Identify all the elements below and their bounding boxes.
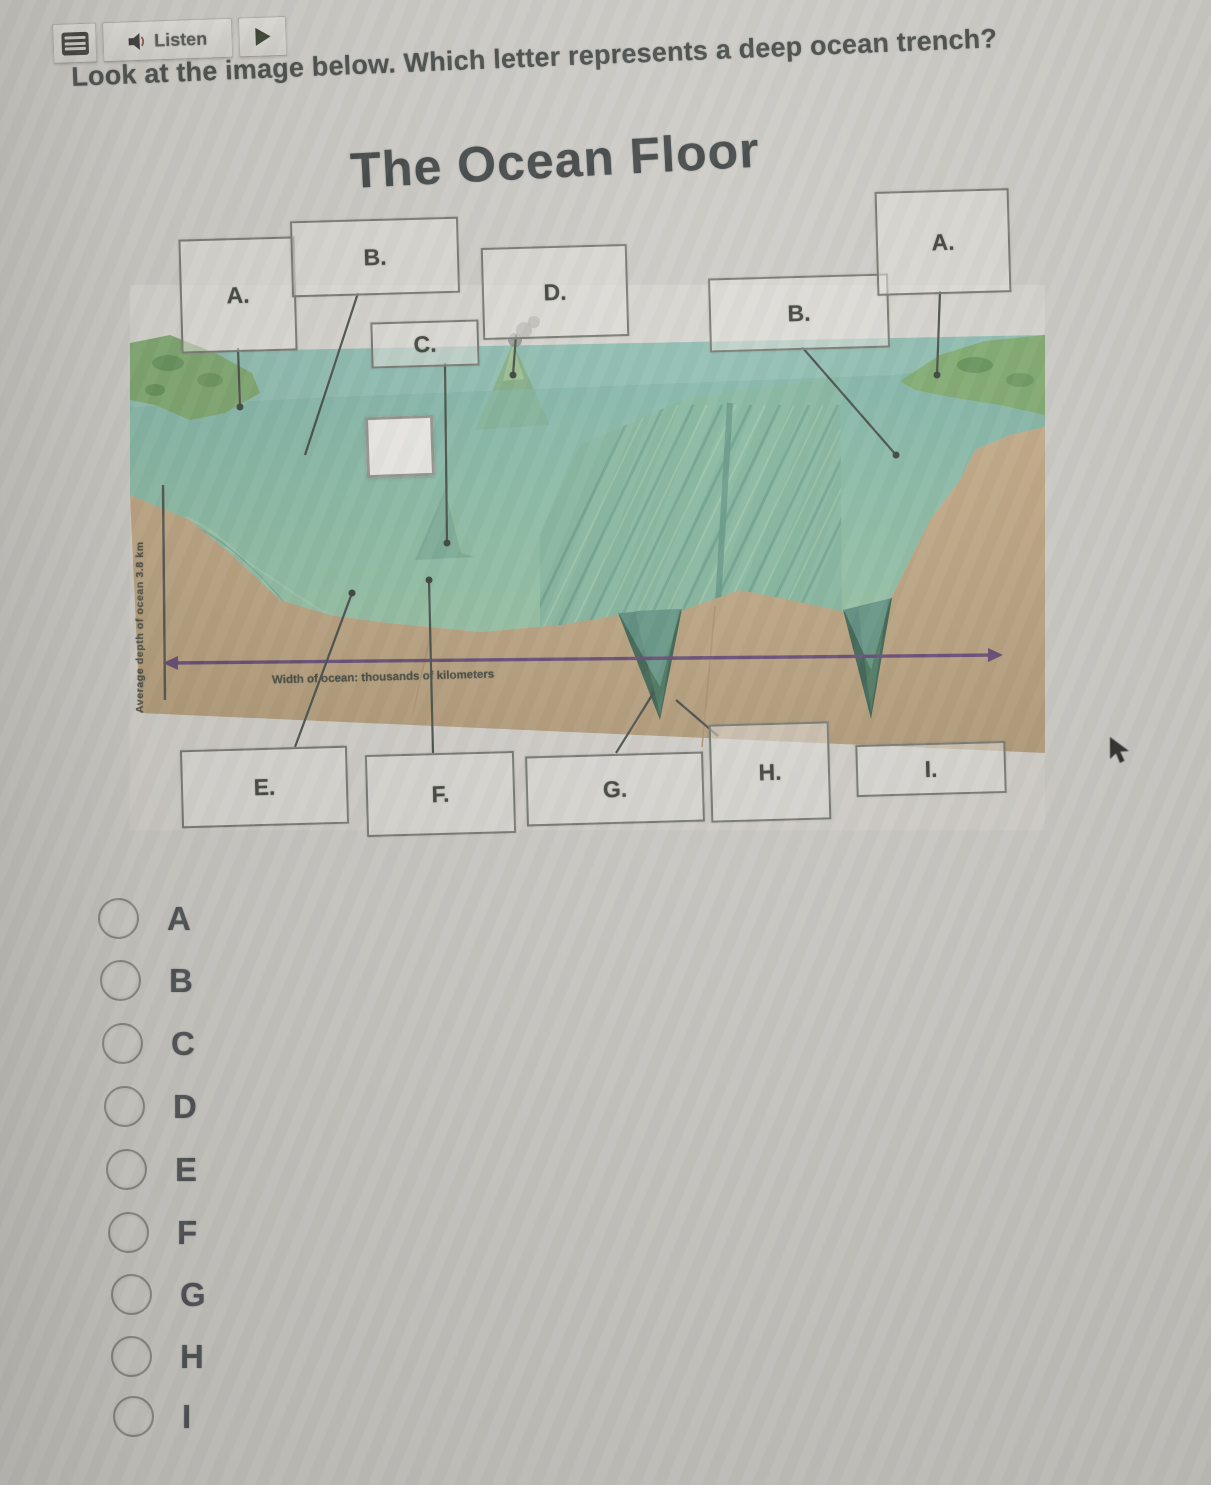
label-f: F. xyxy=(431,780,450,807)
option-row-e: E xyxy=(106,1149,197,1190)
diagram-label-box-c: C. xyxy=(370,320,479,369)
diagram-label-box-i: I. xyxy=(855,741,1006,797)
option-row-f: F xyxy=(108,1212,197,1253)
diagram-label-box-h: H. xyxy=(709,721,832,822)
diagram-label-box-a-right: A. xyxy=(875,188,1012,296)
radio-a[interactable] xyxy=(98,898,139,939)
radio-g[interactable] xyxy=(111,1274,152,1315)
label-a-right: A. xyxy=(931,228,955,256)
radio-d[interactable] xyxy=(104,1086,145,1127)
hamburger-icon xyxy=(61,31,89,55)
option-label-d: D xyxy=(173,1088,197,1126)
diagram-label-box-e: E. xyxy=(180,746,349,829)
diagram-label-box-b-top: B. xyxy=(290,217,460,298)
option-row-c: C xyxy=(102,1023,195,1064)
option-row-a: A xyxy=(98,898,191,939)
label-h: H. xyxy=(758,758,782,786)
option-label-g: G xyxy=(180,1276,206,1314)
option-row-d: D xyxy=(104,1086,197,1127)
label-i: I. xyxy=(924,755,938,782)
diagram-label-box-g: G. xyxy=(525,752,705,827)
radio-c[interactable] xyxy=(102,1023,143,1064)
label-d: D. xyxy=(543,278,567,306)
diagram-label-box-f: F. xyxy=(365,751,516,837)
label-a-left: A. xyxy=(226,281,250,309)
option-label-a: A xyxy=(167,900,191,938)
option-row-h: H xyxy=(111,1336,204,1377)
radio-b[interactable] xyxy=(100,960,141,1001)
listen-button[interactable]: Listen xyxy=(102,18,233,63)
quiz-page: Listen Look at the image below. Which le… xyxy=(0,0,1211,1485)
listen-toolbar: Listen xyxy=(52,16,287,64)
label-g: G. xyxy=(602,775,627,803)
option-label-h: H xyxy=(180,1338,204,1376)
label-b-right: B. xyxy=(787,299,811,327)
option-label-e: E xyxy=(175,1151,197,1189)
diagram-label-box-a-left: A. xyxy=(178,236,297,353)
figure-title: The Ocean Floor xyxy=(349,121,761,200)
y-axis-caption: Average depth of ocean 3.8 km xyxy=(134,448,146,713)
option-row-i: I xyxy=(113,1396,191,1437)
label-b-top: B. xyxy=(363,243,387,271)
empty-label-box xyxy=(365,415,435,478)
label-e: E. xyxy=(253,773,275,801)
option-label-c: C xyxy=(171,1025,195,1063)
option-label-f: F xyxy=(177,1214,197,1252)
diagram-label-box-b-right: B. xyxy=(708,274,890,353)
menu-button[interactable] xyxy=(52,22,97,64)
listen-label: Listen xyxy=(154,28,208,51)
radio-i[interactable] xyxy=(113,1396,154,1437)
play-button[interactable] xyxy=(238,16,287,58)
play-icon xyxy=(254,26,272,47)
mouse-cursor-icon xyxy=(1108,736,1132,766)
option-label-i: I xyxy=(182,1398,191,1436)
option-label-b: B xyxy=(169,962,193,1000)
speaker-icon xyxy=(128,31,148,51)
option-row-b: B xyxy=(100,960,193,1001)
radio-h[interactable] xyxy=(111,1336,152,1377)
radio-f[interactable] xyxy=(108,1212,149,1253)
label-c: C. xyxy=(413,330,437,358)
radio-e[interactable] xyxy=(106,1149,147,1190)
option-row-g: G xyxy=(111,1274,206,1315)
diagram-label-box-d: D. xyxy=(481,244,630,340)
